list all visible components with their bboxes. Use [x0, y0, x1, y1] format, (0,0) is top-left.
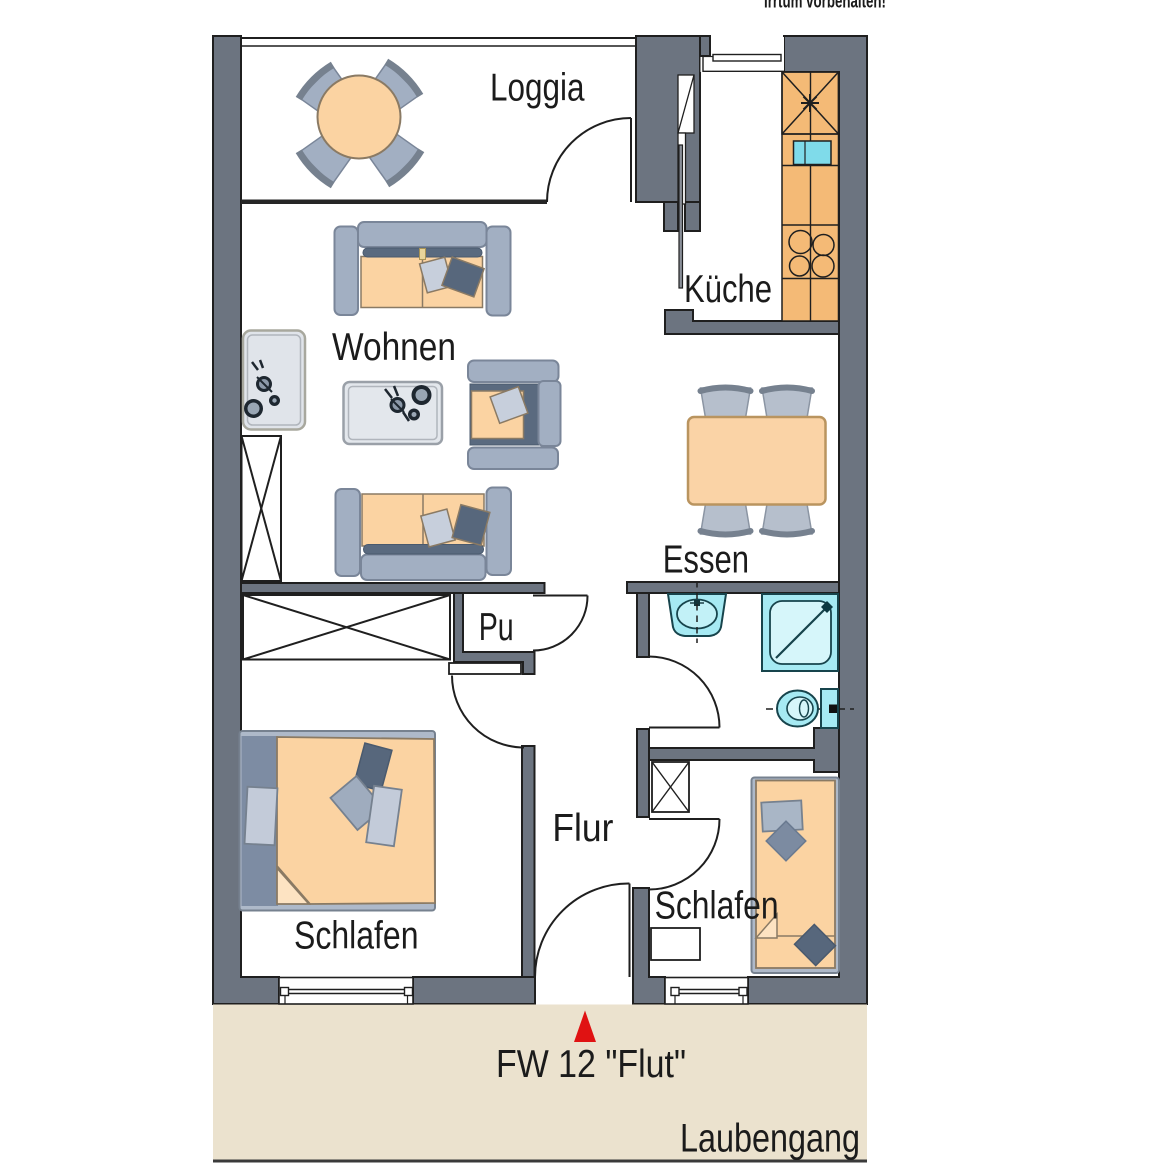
svg-text:Loggia: Loggia — [490, 66, 585, 109]
svg-text:Essen: Essen — [663, 539, 749, 582]
svg-text:Schlafen: Schlafen — [655, 884, 779, 927]
svg-text:FW 12 "Flut": FW 12 "Flut" — [496, 1043, 686, 1086]
svg-text:Laubengang: Laubengang — [680, 1117, 860, 1161]
svg-text:Schlafen: Schlafen — [294, 914, 419, 957]
svg-text:Flur: Flur — [552, 807, 613, 850]
svg-text:Pu: Pu — [479, 606, 514, 649]
svg-text:Wohnen: Wohnen — [332, 326, 456, 369]
svg-text:Küche: Küche — [684, 268, 772, 311]
svg-text:Irrtum vorbehalten!: Irrtum vorbehalten! — [764, 0, 886, 13]
